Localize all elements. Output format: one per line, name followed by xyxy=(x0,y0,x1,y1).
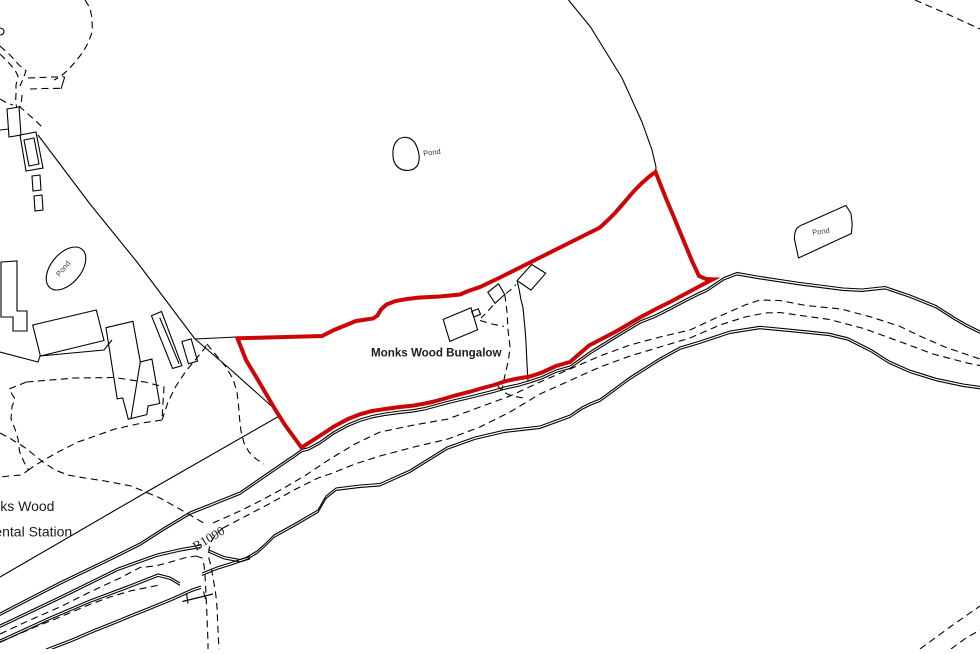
svg-text:Experimental Station: Experimental Station xyxy=(0,524,72,540)
svg-text:Monks Wood: Monks Wood xyxy=(0,498,54,514)
svg-text:Monks Wood Bungalow: Monks Wood Bungalow xyxy=(371,347,503,360)
